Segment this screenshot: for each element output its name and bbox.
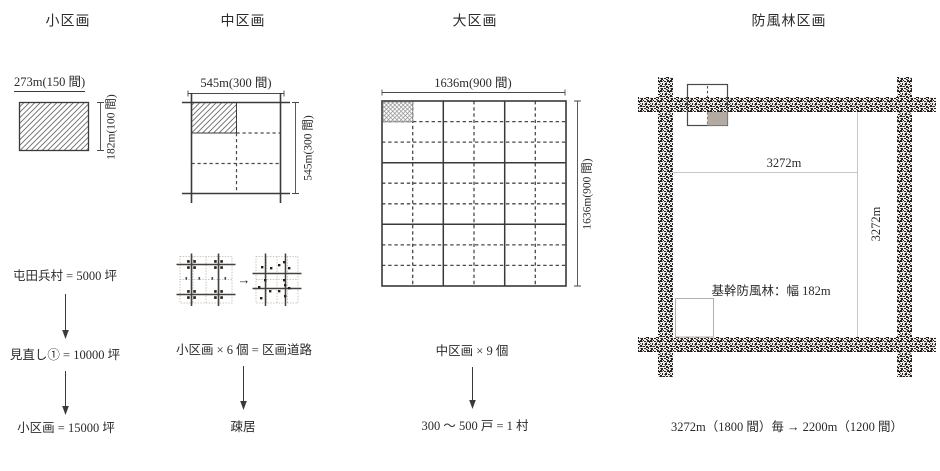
windbreak-band-bottom (638, 337, 936, 352)
medium-parcel-figure (177, 91, 302, 411)
medium-result: 疎居 (230, 421, 255, 435)
windbreak-height-label: 3272m (870, 207, 884, 242)
large-parcel-subdivision-dashes (382, 101, 566, 286)
large-equation: 中区画 × 9 個 (436, 345, 509, 359)
small-flow-step1: 屯田兵村 = 5000 坪 (13, 270, 117, 284)
mini-diagram-arrow: → (238, 273, 251, 287)
large-parcel-hatched-cell (383, 102, 413, 122)
windbreak-width-label: 3272m (767, 157, 802, 171)
small-flow-step3: 小区画 = 15000 坪 (17, 422, 115, 436)
dispersed-settlement-mini-diagram (253, 254, 302, 307)
small-parcel-figure (20, 103, 105, 416)
small-parcel-height-dimension-line (97, 103, 104, 151)
medium-parcel-height-dimension-line (292, 103, 299, 194)
column-title-medium: 中区画 (221, 14, 266, 29)
diagram-shapes (0, 0, 940, 471)
medium-parcel-subdivision-dashes (192, 133, 281, 194)
windbreak-band-top (638, 97, 936, 112)
large-width-label: 1636m(900 間) (434, 77, 511, 91)
flow-arrowhead (469, 400, 476, 409)
flow-arrowhead (240, 401, 247, 410)
flow-arrowhead (62, 406, 69, 415)
medium-width-label: 545m(300 間) (200, 77, 271, 91)
flow-arrowhead (62, 330, 69, 339)
small-flow-step2: 見直し① = 10000 坪 (10, 349, 120, 363)
windbreak-forest-label: 基幹防風林：幅 182m (711, 285, 830, 299)
large-height-label: 1636m(900 間) (582, 158, 595, 229)
medium-parcel-width-dimension-line (188, 91, 284, 97)
medium-height-label: 545m(300 間) (303, 115, 316, 180)
small-width-label: 273m(150 間) (14, 76, 85, 92)
windbreak-parcel-figure (638, 77, 936, 377)
column-title-large: 大区画 (453, 14, 498, 29)
large-parcel-height-dimension-line (574, 101, 581, 286)
windbreak-band-right (897, 77, 912, 377)
windbreak-spacing-note: 3272m（1800 間）毎 → 2200m（1200 間） (671, 421, 903, 435)
small-height-label: 182m(100 間) (106, 94, 119, 159)
land-division-diagram: 小区画 中区画 大区画 防風林区画 273m(150 間) 182m(100 間… (0, 0, 940, 471)
large-parcel-figure (382, 90, 581, 410)
column-title-small: 小区画 (46, 14, 91, 29)
medium-equation: 小区画 × 6 個 = 区画道路 (176, 344, 312, 358)
clustered-settlement-mini-diagram (177, 254, 236, 307)
medium-parcel-hatched-cell (192, 103, 237, 134)
column-title-windbreak: 防風林区画 (752, 14, 827, 29)
small-parcel-hatched-rect (20, 103, 89, 151)
windbreak-band-left (658, 77, 673, 377)
windbreak-callout-square (676, 299, 714, 338)
windbreak-sample-gray-cell (708, 112, 728, 126)
large-result: 300 〜 500 戸 = 1 村 (421, 420, 528, 434)
